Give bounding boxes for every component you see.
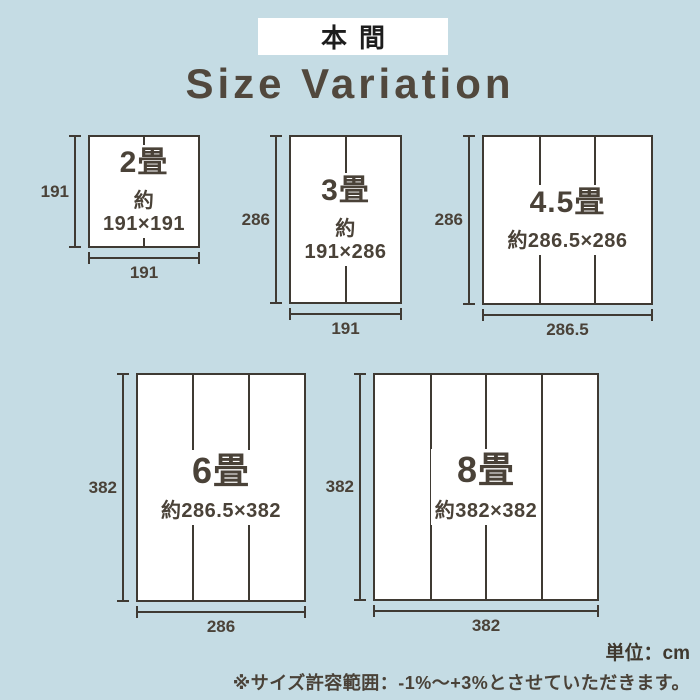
size-item-3jo: 286 3畳 約191×286 191 <box>289 135 402 304</box>
room-type-badge: 本間 <box>258 18 448 55</box>
mat-label: 4.5畳 約286.5×286 <box>503 185 631 255</box>
tolerance-note: ※サイズ許容範囲：-1%〜+3%とさせていただきます。 <box>233 669 690 695</box>
size-item-2jo: 191 2畳 約191×191 191 <box>88 135 200 248</box>
height-dimension-line <box>359 373 361 601</box>
height-dimension-line <box>122 373 124 602</box>
height-dimension-label: 286 <box>242 210 270 230</box>
mat-size-dims: 約286.5×286 <box>507 224 627 253</box>
width-dimension-line <box>289 313 402 315</box>
width-dimension-label: 191 <box>289 319 402 339</box>
width-dimension-line <box>88 257 200 259</box>
mat-label: 2畳 約191×191 <box>90 145 198 238</box>
mat-size-dims: 約191×286 <box>295 212 396 264</box>
mat-size-name: 4.5畳 <box>507 187 627 219</box>
height-dimension-line <box>468 135 470 305</box>
width-dimension-label: 191 <box>88 263 200 283</box>
mat-size-name: 6畳 <box>161 452 281 490</box>
footer-notes: 単位：cm ※サイズ許容範囲：-1%〜+3%とさせていただきます。 <box>233 638 690 695</box>
tatami-rect: 2畳 約191×191 <box>88 135 200 248</box>
mat-size-name: 8畳 <box>435 451 537 489</box>
page-title: Size Variation <box>0 60 700 108</box>
mat-label: 8畳 約382×382 <box>431 449 541 525</box>
mat-size-name: 3畳 <box>295 175 396 207</box>
height-dimension-label: 286 <box>435 210 463 230</box>
tatami-rect: 6畳 約286.5×382 <box>136 373 306 602</box>
width-dimension-label: 286.5 <box>482 320 653 340</box>
mat-size-dims: 約382×382 <box>435 494 537 523</box>
tatami-rect: 4.5畳 約286.5×286 <box>482 135 653 305</box>
mat-size-name: 2畳 <box>94 147 194 179</box>
mat-label: 3畳 約191×286 <box>291 173 400 266</box>
width-dimension-label: 382 <box>373 616 599 636</box>
mat-size-dims: 約191×191 <box>94 184 194 236</box>
tatami-rect: 8畳 約382×382 <box>373 373 599 601</box>
height-dimension-line <box>74 135 76 248</box>
height-dimension-label: 382 <box>89 478 117 498</box>
height-dimension-label: 191 <box>41 182 69 202</box>
width-dimension-label: 286 <box>136 617 306 637</box>
width-dimension-line <box>136 611 306 613</box>
unit-label: 単位：cm <box>233 638 690 665</box>
tatami-rect: 3畳 約191×286 <box>289 135 402 304</box>
height-dimension-label: 382 <box>326 477 354 497</box>
size-item-4-5jo: 286 4.5畳 約286.5×286 286.5 <box>482 135 653 305</box>
height-dimension-line <box>275 135 277 304</box>
width-dimension-line <box>482 314 653 316</box>
size-item-8jo: 382 8畳 約382×382 382 <box>373 373 599 601</box>
mat-size-dims: 約286.5×382 <box>161 494 281 523</box>
mat-label: 6畳 約286.5×382 <box>157 450 285 526</box>
width-dimension-line <box>373 610 599 612</box>
size-item-6jo: 382 6畳 約286.5×382 286 <box>136 373 306 602</box>
